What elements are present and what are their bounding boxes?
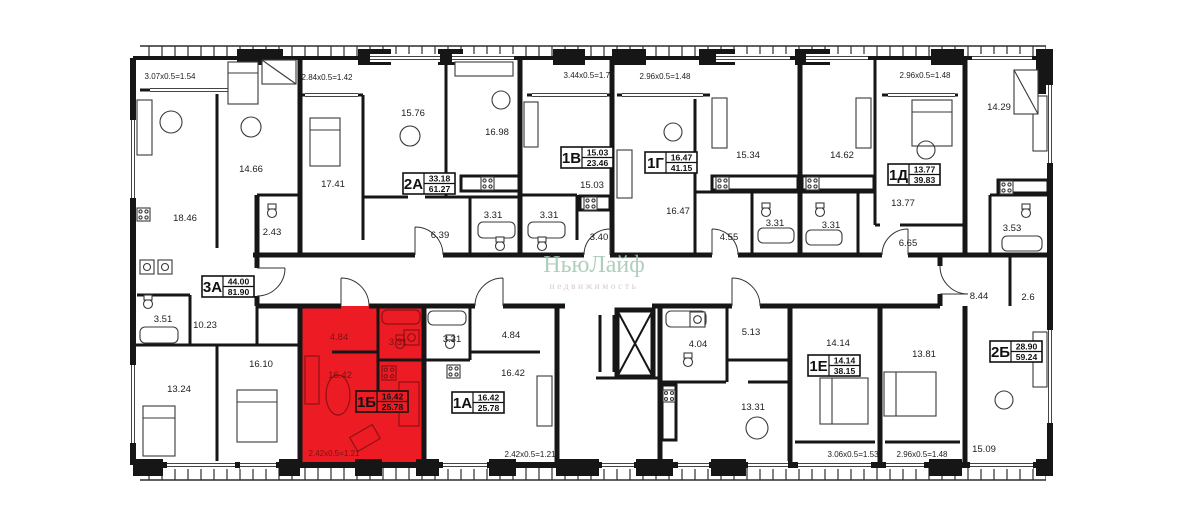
svg-text:28.90: 28.90 <box>1016 342 1038 352</box>
wardrobe-icon <box>262 60 296 84</box>
svg-text:1Г: 1Г <box>647 155 664 172</box>
floor-plan: 18.46 14.66 2.43 3.51 10.23 13.24 16.10 … <box>0 0 1184 529</box>
svg-text:25.78: 25.78 <box>478 403 500 413</box>
stove-icon <box>137 208 150 221</box>
balcony-label-1a: 2.42x0.5=1.21 <box>505 450 556 459</box>
svg-text:81.90: 81.90 <box>228 287 250 297</box>
area-label-1d-kitchen: 14.62 <box>830 150 854 161</box>
balcony-label-3a: 3.07x0.5=1.54 <box>145 72 196 81</box>
bed-icon <box>912 100 952 146</box>
area-label-1e-bath: 4.04 <box>689 339 708 350</box>
bed-icon <box>143 406 175 456</box>
watermark-subtitle: недвижимость <box>550 282 639 292</box>
svg-text:44.00: 44.00 <box>228 277 250 287</box>
sofa-icon <box>712 98 727 148</box>
area-label-1e-bedroom: 14.14 <box>826 338 850 349</box>
svg-text:16.42: 16.42 <box>382 392 404 402</box>
unit-badge-1b-highlighted[interactable]: 1Б 16.42 25.78 <box>356 391 408 412</box>
svg-text:2А: 2А <box>404 176 423 193</box>
area-label-1v-hall: 3.40 <box>590 232 609 243</box>
watermark: НьюЛайф недвижимость <box>543 252 645 292</box>
area-label-1v-kitchen: 15.03 <box>580 180 604 191</box>
washing-machine-icon <box>158 260 172 274</box>
area-label-1g-hall: 4.55 <box>720 232 739 243</box>
stove-icon <box>806 177 819 190</box>
svg-text:15.03: 15.03 <box>587 148 609 158</box>
unit-badge-1a[interactable]: 1А 16.42 25.78 <box>452 392 504 413</box>
sofa-icon <box>137 100 152 155</box>
area-label-1b-bath: 3.31 <box>389 337 408 348</box>
area-label-1d-living: 13.77 <box>891 198 915 209</box>
svg-text:13.77: 13.77 <box>914 165 936 175</box>
area-label-1g-bath: 3.31 <box>766 218 785 229</box>
stove-icon <box>584 197 597 210</box>
area-label-1a-kitchen: 16.42 <box>501 368 525 379</box>
unit-badge-3a[interactable]: 3А 44.00 81.90 <box>202 276 254 297</box>
toilet-icon <box>538 237 547 251</box>
toilet-icon <box>496 237 505 251</box>
area-label-3a-bath: 3.51 <box>154 314 173 325</box>
svg-text:23.46: 23.46 <box>587 158 609 168</box>
area-label-2a-bath: 3.31 <box>484 210 503 221</box>
svg-text:1Д: 1Д <box>889 167 908 184</box>
svg-text:3А: 3А <box>203 279 222 296</box>
area-label-3a-bedroom3: 16.10 <box>249 359 273 370</box>
toilet-icon <box>762 203 771 217</box>
bathtub-icon <box>528 222 565 238</box>
bathtub-icon <box>806 230 842 245</box>
watermark-brand: НьюЛайф <box>543 252 645 278</box>
toilet-icon <box>816 203 825 217</box>
sofa-icon <box>455 62 513 76</box>
area-label-2a-kitchen: 16.98 <box>485 127 509 138</box>
unit-badge-1v[interactable]: 1В 15.03 23.46 <box>561 147 613 168</box>
area-label-2b-living: 15.09 <box>972 444 996 455</box>
toilet-icon <box>684 353 693 367</box>
area-label-2a-bedroom2: 15.76 <box>401 108 425 119</box>
stove-icon <box>663 390 675 402</box>
bed-icon <box>237 390 277 442</box>
wardrobe-icon <box>1014 70 1038 114</box>
svg-text:39.83: 39.83 <box>914 175 936 185</box>
sofa-icon <box>617 150 632 198</box>
area-label-3a-kitchen: 18.46 <box>173 213 197 224</box>
area-label-1d-hall: 6.65 <box>899 238 918 249</box>
balcony-label-1d: 2.96x0.5=1.48 <box>900 71 951 80</box>
balcony-label-2b: 2.96x0.5=1.48 <box>897 450 948 459</box>
bathtub-icon <box>140 327 178 343</box>
unit-badge-1e[interactable]: 1Е 14.14 38.15 <box>808 355 860 376</box>
floor-plan-page: 18.46 14.66 2.43 3.51 10.23 13.24 16.10 … <box>0 0 1184 529</box>
bed-icon <box>884 372 936 416</box>
area-label-1e-hall: 5.13 <box>742 327 761 338</box>
washing-machine-icon <box>140 260 154 274</box>
unit-badge-1d[interactable]: 1Д 13.77 39.83 <box>888 164 940 185</box>
area-label-1a-bath: 3.31 <box>443 334 462 345</box>
svg-text:14.14: 14.14 <box>834 356 856 366</box>
balcony-label-1g: 2.96x0.5=1.48 <box>640 72 691 81</box>
svg-text:1Б: 1Б <box>357 394 376 411</box>
unit-badge-1g[interactable]: 1Г 16.47 41.15 <box>645 152 697 173</box>
area-label-1v-bath: 3.31 <box>540 210 559 221</box>
area-label-2b-storage: 2.6 <box>1021 292 1034 303</box>
balcony-label-1v: 3.44x0.5=1.72 <box>564 71 615 80</box>
area-label-1g-kitchen: 15.34 <box>736 150 760 161</box>
area-label-3a-hall: 10.23 <box>193 320 217 331</box>
area-label-2b-bath: 3.53 <box>1003 223 1022 234</box>
area-label-2b-bedroom: 13.81 <box>912 349 936 360</box>
area-label-2b-hall: 8.44 <box>970 291 989 302</box>
svg-text:2Б: 2Б <box>991 344 1010 361</box>
svg-text:41.15: 41.15 <box>671 163 693 173</box>
stove-icon <box>447 365 460 378</box>
area-label-2a-hall: 6.39 <box>431 230 450 241</box>
svg-text:16.47: 16.47 <box>671 153 693 163</box>
unit-badge-2a[interactable]: 2А 33.18 61.27 <box>403 173 455 194</box>
svg-text:1Е: 1Е <box>809 358 827 375</box>
area-label-3a-bedroom2: 13.24 <box>167 384 191 395</box>
area-label-2a-bedroom1: 17.41 <box>321 179 345 190</box>
area-label-1a-hall: 4.84 <box>502 330 521 341</box>
toilet-icon <box>268 204 277 218</box>
sofa-icon <box>524 102 538 147</box>
area-label-3a-bedroom1: 14.66 <box>239 164 263 175</box>
bathtub-icon <box>478 222 515 238</box>
area-label-1g-living: 16.47 <box>666 206 690 217</box>
bathtub-icon <box>428 311 466 325</box>
balcony-label-2a: 2.84x0.5=1.42 <box>302 73 353 82</box>
bed-icon <box>820 378 868 424</box>
unit-badge-2b[interactable]: 2Б 28.90 59.24 <box>990 341 1042 362</box>
sofa-icon <box>856 98 871 148</box>
washing-machine-icon <box>690 312 705 327</box>
balcony-label-1b: 2.42x0.5=1.21 <box>309 449 360 458</box>
area-label-3a-wc: 2.43 <box>263 227 282 238</box>
svg-text:61.27: 61.27 <box>429 184 451 194</box>
toilet-icon <box>1022 204 1031 218</box>
area-label-1b-kitchen: 16.42 <box>328 370 352 381</box>
stove-icon <box>716 177 729 190</box>
svg-text:59.24: 59.24 <box>1016 352 1038 362</box>
area-label-1e-kitchen: 13.31 <box>741 402 765 413</box>
svg-text:16.42: 16.42 <box>478 393 500 403</box>
area-label-2b-kitchen: 14.29 <box>987 102 1011 113</box>
bed-icon <box>310 118 340 166</box>
svg-text:1А: 1А <box>453 395 472 412</box>
bathtub-icon <box>1002 236 1042 251</box>
sofa-icon <box>537 376 552 426</box>
svg-text:1В: 1В <box>562 150 581 167</box>
balcony-label-1e: 3.06x0.5=1.53 <box>828 450 879 459</box>
toilet-icon <box>144 295 153 309</box>
stove-icon <box>481 177 494 190</box>
stove-icon <box>1000 181 1013 194</box>
svg-text:25.78: 25.78 <box>382 402 404 412</box>
bed-icon <box>228 62 258 104</box>
svg-text:33.18: 33.18 <box>429 174 451 184</box>
area-label-1b-hall: 4.84 <box>330 332 349 343</box>
bathtub-icon <box>758 228 794 243</box>
area-label-1d-bath: 3.31 <box>822 220 841 231</box>
svg-text:38.15: 38.15 <box>834 366 856 376</box>
